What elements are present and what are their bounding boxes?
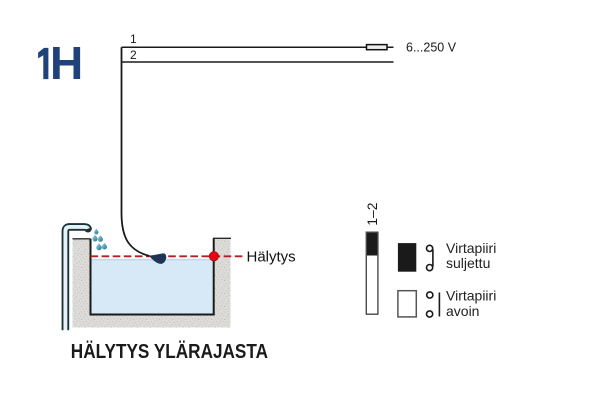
svg-text:suljettu: suljettu (446, 255, 490, 271)
svg-text:avoin: avoin (446, 303, 479, 319)
svg-text:6...250 V: 6...250 V (406, 41, 457, 55)
svg-text:2: 2 (130, 48, 137, 62)
svg-text:Hälytys: Hälytys (247, 248, 296, 265)
svg-text:Virtapiiri: Virtapiiri (446, 287, 496, 303)
svg-text:Virtapiiri: Virtapiiri (446, 240, 496, 256)
svg-text:H: H (50, 37, 83, 89)
svg-text:1–2: 1–2 (364, 202, 380, 226)
svg-text:HÄLYTYS YLÄRAJASTA: HÄLYTYS YLÄRAJASTA (71, 341, 269, 364)
svg-text:1: 1 (130, 32, 137, 46)
